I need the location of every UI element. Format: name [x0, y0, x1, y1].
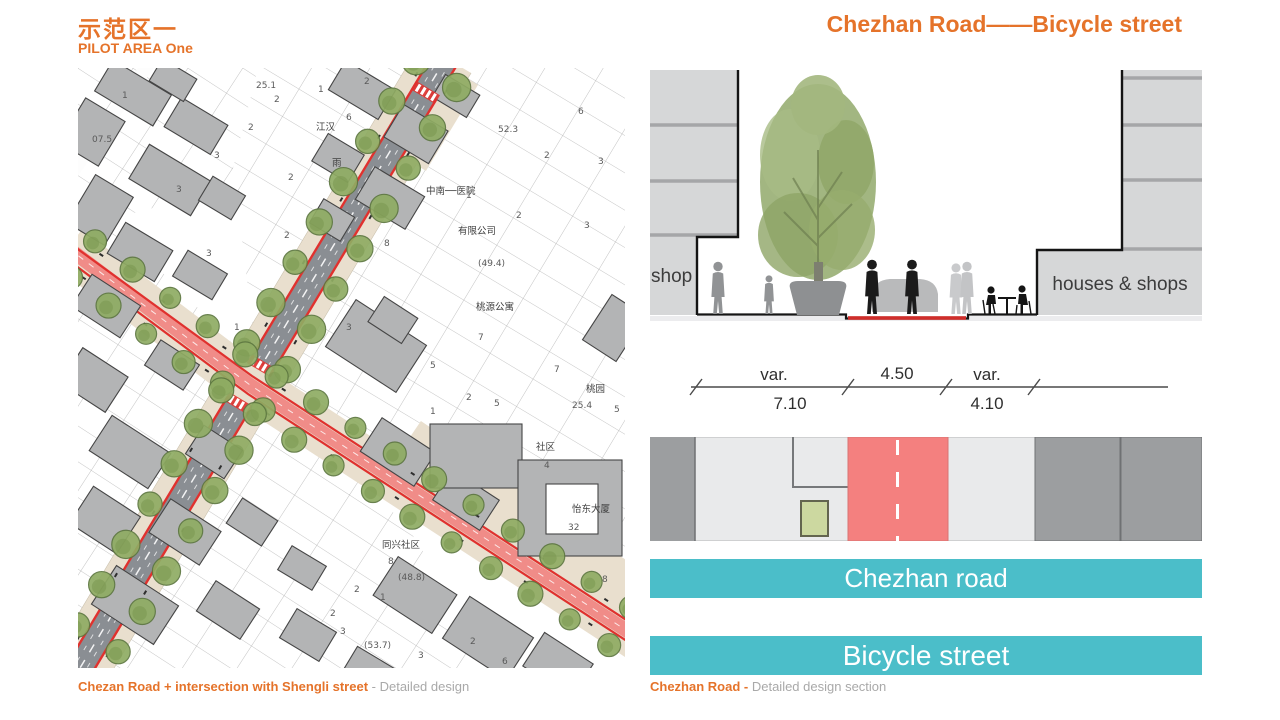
- svg-text:25.4: 25.4: [572, 401, 592, 411]
- svg-text:怡东大厦: 怡东大厦: [572, 503, 611, 515]
- caption-right-rest: Detailed design section: [752, 679, 886, 694]
- svg-text:桃源公寓: 桃源公寓: [476, 301, 514, 313]
- person-adult: [711, 262, 724, 314]
- svg-text:3: 3: [584, 221, 590, 231]
- caption-right: Chezhan Road - Detailed design section: [650, 679, 886, 694]
- page-title-en: PILOT AREA One: [78, 40, 193, 56]
- svg-text:3: 3: [206, 249, 212, 259]
- svg-text:7: 7: [554, 365, 560, 375]
- svg-text:1: 1: [122, 91, 128, 101]
- building-footprint-left: [650, 437, 695, 541]
- building-footprint-right-1: [1035, 437, 1120, 541]
- svg-text:3: 3: [346, 323, 352, 333]
- slide: 示范区一 PILOT AREA One Chezhan Road——Bicycl…: [0, 0, 1280, 720]
- dim-710: 7.10: [773, 394, 806, 413]
- street-section-drawing: shop houses & shops: [650, 70, 1202, 321]
- houses-shops-label: houses & shops: [1052, 274, 1187, 295]
- svg-text:同兴社区: 同兴社区: [382, 539, 421, 551]
- page-title-right: Chezhan Road——Bicycle street: [650, 11, 1202, 38]
- dim-var-1: var.: [760, 365, 787, 384]
- svg-text:2: 2: [354, 585, 360, 595]
- planting-bed: [801, 501, 828, 536]
- page-title-zh: 示范区一: [78, 10, 178, 44]
- svg-text:3: 3: [418, 651, 424, 661]
- svg-text:1: 1: [318, 85, 324, 95]
- person-child: [764, 275, 774, 314]
- caption-left-highlight: Chezan Road + intersection with Shengli …: [78, 679, 368, 694]
- dim-450: 4.50: [880, 364, 913, 383]
- banner-chezhan-road: Chezhan road: [650, 559, 1202, 598]
- person-group: [960, 262, 973, 314]
- caption-right-highlight: Chezhan Road -: [650, 679, 752, 694]
- svg-text:3: 3: [598, 157, 604, 167]
- svg-text:2: 2: [544, 151, 550, 161]
- svg-text:5: 5: [614, 405, 620, 415]
- svg-text:(49.4): (49.4): [478, 259, 505, 269]
- svg-text:中南──医院: 中南──医院: [426, 185, 476, 197]
- svg-text:江汉: 江汉: [316, 122, 336, 133]
- svg-text:社区: 社区: [536, 441, 556, 453]
- svg-text:3: 3: [214, 151, 220, 161]
- svg-text:2: 2: [364, 77, 370, 87]
- svg-text:5: 5: [430, 361, 436, 371]
- svg-text:8: 8: [602, 575, 608, 585]
- svg-text:1: 1: [234, 323, 240, 333]
- svg-text:桃园: 桃园: [586, 383, 605, 395]
- svg-text:32: 32: [568, 523, 579, 533]
- car-silhouette: [872, 279, 938, 312]
- shop-label: shop: [651, 266, 692, 287]
- svg-text:3: 3: [176, 185, 182, 195]
- section-tree: [758, 75, 876, 315]
- svg-text:5: 5: [494, 399, 500, 409]
- dimension-line: var. 4.50 var. 7.10 4.10: [650, 353, 1202, 415]
- cafe-table-group: [983, 285, 1031, 314]
- caption-left-rest: - Detailed design: [368, 679, 469, 694]
- svg-text:2: 2: [516, 211, 522, 221]
- svg-text:1: 1: [380, 593, 386, 603]
- svg-text:3: 3: [340, 627, 346, 637]
- tree-planter: [790, 281, 847, 315]
- bike-lane-marker: [848, 316, 966, 320]
- street-plan-strip: [650, 437, 1202, 541]
- building-footprint-right-2: [1121, 437, 1202, 541]
- svg-text:2: 2: [466, 393, 472, 403]
- dim-var-2: var.: [973, 365, 1000, 384]
- svg-text:2: 2: [288, 173, 294, 183]
- person-group: [950, 263, 963, 314]
- svg-text:有限公司: 有限公司: [458, 225, 496, 237]
- svg-text:8: 8: [388, 557, 394, 567]
- svg-text:7: 7: [478, 333, 484, 343]
- svg-text:2: 2: [274, 95, 280, 105]
- svg-text:(48.8): (48.8): [398, 573, 425, 583]
- svg-text:2: 2: [284, 231, 290, 241]
- svg-text:1: 1: [430, 407, 436, 417]
- banner-bicycle-street: Bicycle street: [650, 636, 1202, 675]
- svg-text:07.5: 07.5: [92, 135, 112, 145]
- svg-text:2: 2: [330, 609, 336, 619]
- dim-410: 4.10: [970, 394, 1003, 413]
- site-plan-map: 125.1212623307.5江汉2雨3252.3236123中南──医院有限…: [78, 68, 625, 668]
- svg-text:52.3: 52.3: [498, 125, 518, 135]
- svg-text:6: 6: [346, 113, 352, 123]
- svg-text:6: 6: [502, 657, 508, 667]
- svg-text:8: 8: [384, 239, 390, 249]
- svg-text:2: 2: [470, 637, 476, 647]
- svg-text:4: 4: [544, 461, 550, 471]
- caption-left: Chezan Road + intersection with Shengli …: [78, 679, 469, 694]
- svg-text:(53.7): (53.7): [364, 641, 391, 651]
- svg-text:2: 2: [248, 123, 254, 133]
- svg-text:25.1: 25.1: [256, 81, 276, 91]
- svg-text:6: 6: [578, 107, 584, 117]
